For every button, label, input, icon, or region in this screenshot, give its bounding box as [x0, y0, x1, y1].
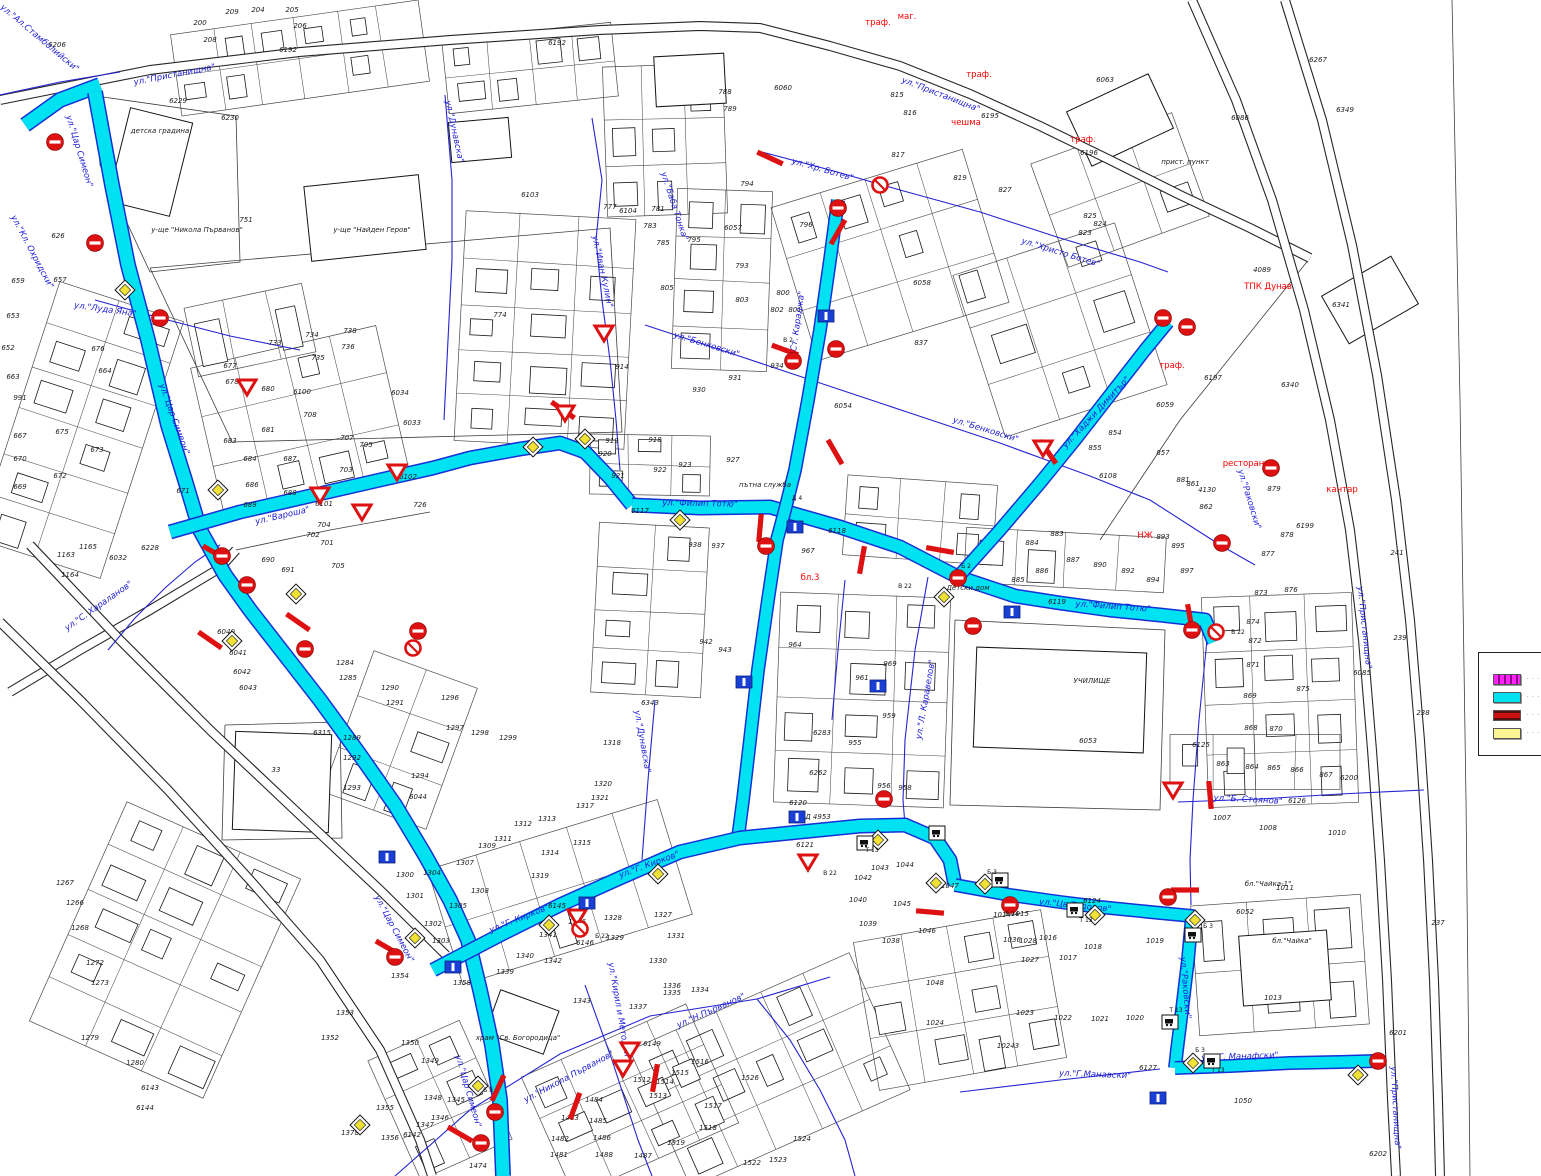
parcel-number: 867	[1319, 771, 1333, 779]
parcel-number: 6267	[1309, 56, 1327, 64]
info-crosswalk-sign-icon	[1150, 1092, 1166, 1104]
parcel-number: 690	[261, 556, 275, 564]
parcel-number: 239	[1393, 634, 1407, 642]
ul-tsar-simeon	[95, 92, 503, 1176]
parcel-number: 1327	[654, 911, 672, 919]
parcel-number: 1349	[421, 1057, 439, 1065]
sign-code-label: Т 13	[864, 847, 878, 854]
parcel-number: 672	[53, 472, 67, 480]
parcel-number: 1024	[926, 1019, 944, 1027]
parcel-number: 1514	[656, 1078, 674, 1086]
parcel-number: 6057	[724, 224, 742, 232]
parcel-number: 200	[193, 19, 207, 27]
parcel-number: 676	[91, 345, 105, 353]
parcel-number: 794	[740, 180, 753, 188]
parcel-number: 819	[953, 174, 967, 182]
parcel-number: 1311	[494, 835, 512, 843]
parcel-number: 626	[51, 232, 65, 240]
parcel-number: 1165	[79, 543, 97, 551]
map-annotation: у-ще "Найден Геров"	[332, 226, 410, 234]
parcel-number: 878	[1280, 531, 1294, 539]
legend-label: · · · · · · ·	[1527, 676, 1541, 682]
parcel-number: 955	[848, 739, 862, 747]
parcel-number: 1335	[663, 989, 681, 997]
parcel-number: 1515	[671, 1069, 689, 1077]
parcel-number: 1290	[381, 684, 399, 692]
no-entry-sign-icon	[1370, 1053, 1387, 1070]
parcel-number: 1042	[854, 874, 872, 882]
parcel-number: 6054	[834, 402, 852, 410]
parcel-number: 707	[340, 434, 354, 442]
parcel-number: 1285	[339, 674, 357, 682]
parcel-number: 6060	[774, 84, 792, 92]
cadastral-map: 2002042052062082096206623062297516192619…	[0, 0, 1541, 1176]
parcel-number: 777	[603, 203, 617, 211]
parcel-number: 1487	[634, 1152, 652, 1160]
parcel-number: 1350	[401, 1039, 419, 1047]
street-label: ул."Б. Стоянов"	[1212, 793, 1283, 807]
info-crosswalk-sign-icon	[818, 310, 834, 322]
parcel-number: 868	[1244, 724, 1258, 732]
info-crosswalk-sign-icon	[736, 676, 752, 688]
parcel-number: 1513	[649, 1092, 667, 1100]
parcel-number: 663	[6, 373, 19, 381]
legend-header: · · ·	[1493, 661, 1541, 667]
parcel-number: 938	[688, 541, 702, 549]
parcel-number: 671	[176, 487, 189, 495]
parcel-number: 956	[877, 782, 891, 790]
parcel-number: 1008	[1259, 824, 1277, 832]
parcel-number: 1023	[1016, 1009, 1034, 1017]
parcel-number: 877	[1261, 550, 1275, 558]
street-label: ул."Филип Тотю"	[661, 498, 738, 509]
no-entry-sign-icon	[1214, 535, 1231, 552]
legend-swatch-yellow	[1493, 728, 1521, 739]
parcel-number: 667	[13, 432, 27, 440]
parcel-number: 6063	[1096, 76, 1114, 84]
no-entry-sign-icon	[410, 623, 427, 640]
parcel-number: 789	[723, 105, 737, 113]
parcel-number: 703	[339, 466, 352, 474]
parcel-number: 854	[1108, 429, 1121, 437]
parcel-number: 922	[653, 466, 667, 474]
sign-code-label: Б 22	[595, 933, 609, 940]
red-annotation: ТПК Дунав	[1243, 282, 1292, 292]
block	[771, 149, 1009, 360]
parcel-number: 205	[285, 6, 299, 14]
parcel-number: 872	[1248, 637, 1262, 645]
parcel-number: 691	[281, 566, 294, 574]
parcel-number: 738	[343, 327, 357, 335]
parcel-number: 1027	[1021, 956, 1039, 964]
sign-post-bar	[1206, 781, 1214, 809]
parcel-number: 874	[1246, 618, 1259, 626]
parcel-number: 1319	[531, 872, 549, 880]
parcel-number: 927	[726, 456, 740, 464]
sign-post-bar	[857, 546, 867, 574]
parcel-number: 1036	[1003, 936, 1021, 944]
sign-post-bar	[756, 150, 784, 167]
parcel-number: 1046	[918, 927, 936, 935]
no-entry-sign-icon	[473, 1135, 490, 1152]
info-crosswalk-sign-icon	[379, 851, 395, 863]
parcel-number: 873	[1254, 589, 1267, 597]
sign-code-label: Б 3	[483, 1087, 493, 1094]
parcel-number: 1343	[573, 997, 591, 1005]
parcel-number: 670	[13, 455, 27, 463]
parcel-number: 1321	[591, 794, 609, 802]
sign-code-label: В 24	[1005, 911, 1019, 918]
parcel-number: 894	[1146, 576, 1159, 584]
parcel-number: 1038	[882, 937, 900, 945]
map-annotation: бл."Чайка-1"	[1245, 880, 1292, 888]
red-annotation: траф.	[865, 18, 891, 28]
parcel-number: 862	[1199, 503, 1213, 511]
parcel-number: 736	[341, 343, 355, 351]
parcel-number: 1040	[849, 896, 867, 904]
parcel-number: 1304	[423, 869, 441, 877]
parcel-number: 6145	[548, 902, 566, 910]
sign-code-label: В 22	[898, 583, 912, 590]
parcel-number: 1356	[381, 1134, 399, 1142]
yield-sign-icon	[595, 326, 613, 341]
parcel-number: 1007	[1213, 814, 1231, 822]
parcel-number: 208	[203, 36, 217, 44]
parcel-number: 1297	[446, 724, 464, 732]
ul-varosha-casing	[170, 443, 632, 532]
street-label: ул."Хр. Ботев"	[790, 156, 855, 184]
parcel-number: 735	[311, 354, 325, 362]
parcel-number: 1266	[66, 899, 84, 907]
red-annotation: чешма	[951, 118, 981, 128]
parcel-number: 1474	[469, 1162, 487, 1170]
parcel-number: 1021	[1091, 1015, 1109, 1023]
parcel-number: 805	[660, 284, 674, 292]
sign-code-label: Т 13	[1168, 1007, 1182, 1014]
parcel-number: 875	[1296, 685, 1310, 693]
street-label: ул."Цар Симеон"	[63, 113, 95, 188]
parcel-number: 890	[1093, 561, 1107, 569]
parcel-number: 1523	[769, 1156, 787, 1164]
sign-code-label: В 22	[1231, 629, 1245, 636]
parcel-number: 688	[283, 489, 297, 497]
sign-post-bar	[1171, 887, 1199, 892]
parcel-numbers: 2002042052062082096206623062297516192619…	[1, 6, 1445, 1170]
parcel-number: 6118	[828, 527, 846, 535]
no-entry-sign-icon	[152, 310, 169, 327]
no-entry-sign-icon	[239, 577, 256, 594]
legend-item-route-yellow: · · · · ·	[1493, 727, 1541, 739]
parcel-number: 1039	[859, 920, 877, 928]
parcel-number: 657	[53, 276, 67, 284]
no-entry-sign-icon	[1184, 622, 1201, 639]
map-annotation: пътна служба	[739, 481, 791, 489]
map-annotation: бл."Чайка"	[1272, 937, 1312, 945]
parcel-number: 1303	[432, 937, 450, 945]
parcel-number: 6201	[1389, 1029, 1407, 1037]
parcel-number: 681	[261, 426, 274, 434]
map-annotation: прист. пункт	[1161, 158, 1209, 166]
parcel-number: 823	[1078, 229, 1091, 237]
map-canvas[interactable]: 2002042052062082096206623062297516192619…	[0, 0, 1541, 1176]
sign-code-label: Б 2	[961, 563, 971, 570]
parcel-number: 781	[651, 205, 664, 213]
parcel-number: 1267	[56, 879, 74, 887]
parcel-number: 683	[223, 437, 236, 445]
parcel-number: 6229	[169, 97, 187, 105]
parcel-number: 1358	[453, 979, 471, 987]
parcel-number: 1291	[386, 699, 404, 707]
parcel-number: 1296	[441, 694, 459, 702]
parcel-number: 6142	[403, 1131, 421, 1139]
parcel-number: 1519	[667, 1139, 685, 1147]
parcel-number: 664	[98, 367, 111, 375]
parcel-number: 1010	[1328, 829, 1346, 837]
parcel-number: 1317	[576, 802, 594, 810]
red-annotation: бл.3	[801, 573, 820, 583]
parcel-number: 1312	[514, 820, 532, 828]
yield-sign-icon	[799, 855, 817, 870]
parcel-number: 6033	[403, 419, 421, 427]
parcel-number: 6146	[576, 939, 594, 947]
bus-stop-sign-icon	[1067, 903, 1083, 917]
parcel-number: 1300	[396, 871, 414, 879]
parcel-number: 6120	[789, 799, 807, 807]
parcel-number: 6121	[796, 841, 814, 849]
parcel-number: 6108	[1099, 472, 1117, 480]
parcel-number: 991	[13, 394, 26, 402]
parcel-number: 6100	[293, 388, 311, 396]
parcel-number: 669	[13, 483, 27, 491]
red-annotation: НЖ	[1137, 531, 1153, 541]
parcel-number: 6103	[521, 191, 539, 199]
parcel-number: 1354	[391, 972, 409, 980]
map-annotation: Детски дом	[945, 584, 990, 592]
parcel-number: 895	[1171, 542, 1185, 550]
parcel-number: 6228	[141, 544, 159, 552]
parcel-number: 1043	[871, 864, 889, 872]
parcel-number: 1272	[86, 959, 104, 967]
parcel-number: 708	[303, 411, 317, 419]
parcel-number: 6230	[221, 114, 239, 122]
yield-sign-icon	[238, 380, 256, 395]
parcel-number: 673	[90, 446, 103, 454]
parcel-number: 920	[598, 450, 612, 458]
parcel-number: 659	[11, 277, 25, 285]
parcel-number: 958	[898, 784, 912, 792]
sign-code-label: Д 4	[792, 495, 803, 502]
parcel-number: 942	[699, 638, 713, 646]
parcel-number: 893	[1156, 533, 1169, 541]
parcel-number: 1301	[406, 892, 424, 900]
parcel-number: 6340	[1281, 381, 1299, 389]
parcel-number: 6059	[1156, 401, 1174, 409]
parcel-number: 6052	[1236, 908, 1254, 916]
sign-code-label: В 22	[823, 870, 837, 877]
parcel-number: 6343	[641, 699, 659, 707]
parcel-number: 1305	[449, 902, 467, 910]
parcel-number: 6192	[548, 39, 566, 47]
parcel-number: 1481	[550, 1151, 568, 1159]
red-annotation: кантар	[1326, 485, 1357, 495]
parcel-number: 6149	[643, 1040, 661, 1048]
parcel-number: 959	[882, 712, 896, 720]
parcel-number: 6144	[136, 1104, 154, 1112]
parcel-number: 1485	[589, 1117, 607, 1125]
info-crosswalk-sign-icon	[579, 897, 595, 909]
parcel-number: 816	[903, 109, 917, 117]
parcel-number: 879	[1267, 485, 1281, 493]
parcel-number: 1019	[1146, 937, 1164, 945]
parcel-number: 1313	[538, 815, 556, 823]
parcel-number: 1163	[57, 551, 75, 559]
parcel-number: 6085	[1353, 669, 1371, 677]
parcel-number: 1353	[336, 1009, 354, 1017]
parcel-number: 1044	[896, 861, 914, 869]
no-entry-sign-icon	[758, 538, 775, 555]
parcel-number: 869	[1243, 692, 1257, 700]
no-entry-sign-icon	[297, 641, 314, 658]
bus-stop-sign-icon	[929, 826, 945, 840]
parcel-number: 238	[1416, 709, 1430, 717]
street-label: ул."Раковски"	[1235, 467, 1263, 530]
parcel-number: 734	[305, 331, 318, 339]
no-entry-sign-icon	[214, 548, 231, 565]
parcel-number: 855	[1088, 444, 1102, 452]
legend-item-route-cyan: · · · · ·	[1493, 691, 1541, 703]
parcel-number: 1512	[633, 1076, 651, 1084]
parcel-number: 964	[788, 641, 801, 649]
parcel-number: 881	[1176, 476, 1189, 484]
parcel-number: 931	[728, 374, 741, 382]
parcel-number: 6197	[1204, 374, 1222, 382]
sign-post-bar	[447, 1125, 474, 1144]
parcel-number: 866	[1290, 766, 1304, 774]
parcel-number: 4130	[1198, 486, 1216, 494]
parcel-number: 1339	[496, 968, 514, 976]
parcel-number: 6196	[1080, 149, 1098, 157]
parcel-number: 783	[643, 222, 656, 230]
parcel-number: 702	[306, 531, 320, 539]
parcel-number: 1355	[376, 1104, 394, 1112]
parcel-number: 1320	[594, 780, 612, 788]
parcel-number: 6200	[1340, 774, 1358, 782]
sign-code-label: Б 3	[987, 869, 997, 876]
parcel-number: 837	[914, 339, 928, 347]
parcel-number: 884	[1025, 539, 1038, 547]
parcel-number: 1318	[603, 739, 621, 747]
parcel-number: 6086	[1231, 114, 1249, 122]
parcel-number: 1482	[551, 1135, 569, 1143]
parcel-number: 705	[359, 441, 373, 449]
parcel-number: 751	[239, 216, 252, 224]
parcel-number: 6104	[619, 207, 637, 215]
parcel-number: 10243	[997, 1042, 1019, 1050]
parcel-number: 1348	[424, 1094, 442, 1102]
parcel-number: 1308	[471, 887, 489, 895]
parcel-number: 1342	[544, 957, 562, 965]
parcel-number: 6119	[1048, 598, 1066, 606]
block	[29, 802, 300, 1099]
parcel-number: 6053	[1079, 737, 1097, 745]
parcel-number: 6034	[391, 389, 409, 397]
parcel-number: 883	[1050, 530, 1063, 538]
parcel-number: 687	[283, 455, 297, 463]
bus-stop-sign-icon	[1204, 1054, 1220, 1068]
parcel-number: 6044	[409, 793, 427, 801]
parcel-number: 1314	[541, 849, 559, 857]
no-entry-sign-icon	[1155, 310, 1172, 327]
parcel-number: 887	[1066, 556, 1080, 564]
parcel-number: 733	[268, 339, 281, 347]
parcel-number: 1050	[1234, 1097, 1252, 1105]
parcel-number: 1016	[1039, 934, 1057, 942]
red-annotation: траф.	[966, 70, 992, 80]
parcel-number: 1292	[343, 754, 361, 762]
parcel-number: 6349	[1336, 106, 1354, 114]
parcel-number: 209	[225, 8, 239, 16]
parcel-number: 6032	[109, 554, 127, 562]
parcel-number: 701	[320, 539, 333, 547]
parcel-number: 1345	[447, 1096, 465, 1104]
parcel-number: 33	[272, 766, 281, 774]
parcel-number: 863	[1216, 760, 1229, 768]
red-annotation: траф.	[1070, 135, 1096, 145]
parcel-number: 680	[261, 385, 275, 393]
ul-tsar-simeon-casing	[95, 92, 503, 1176]
no-entry-sign-icon	[387, 949, 404, 966]
no-entry-sign-icon	[828, 341, 845, 358]
parcel-number: 1293	[343, 784, 361, 792]
legend-item-route-red: · · · · ·	[1493, 709, 1541, 721]
parcel-number: 943	[718, 646, 731, 654]
parcel-number: 1331	[667, 932, 685, 940]
parcel-number: 677	[223, 362, 237, 370]
parcel-number: 1020	[1126, 1014, 1144, 1022]
parcel-number: 6117	[631, 507, 649, 515]
parcel-number: 1334	[691, 986, 709, 994]
parcel-number: 6127	[1139, 1064, 1157, 1072]
map-annotation: детска градина	[130, 127, 189, 135]
priority-road-sign-icon	[208, 480, 228, 500]
bus-stop-sign-icon	[1162, 1015, 1178, 1029]
parcel-number: 871	[1246, 661, 1259, 669]
parcel-number: 1045	[893, 900, 911, 908]
red-labels: траф.маг.траф.чешматраф.ТПК Дунавтраф.ре…	[801, 12, 1358, 583]
map-annotation: УЧИЛИЩЕ	[1074, 677, 1111, 685]
parcel-number: 6143	[141, 1084, 159, 1092]
legend-label: · · · · ·	[1527, 730, 1541, 736]
info-crosswalk-sign-icon	[789, 811, 805, 823]
map-legend: · · · · · · · · · · · · · · · · · · · · …	[1478, 652, 1541, 756]
parcel-number: 923	[678, 461, 691, 469]
parcel-number: 241	[1390, 549, 1403, 557]
red-annotation: траф.	[1159, 361, 1185, 371]
parcel-number: 969	[883, 660, 897, 668]
no-entry-sign-icon	[1263, 460, 1280, 477]
parcel-number: 6262	[809, 769, 827, 777]
parcel-number: 686	[245, 481, 259, 489]
parcel-number: 1013	[1264, 994, 1282, 1002]
parcel-number: 206	[293, 22, 307, 30]
roads	[0, 0, 1440, 1176]
parcel-number: 788	[718, 88, 732, 96]
no-parking-sign-icon	[406, 641, 421, 656]
parcel-number: 6195	[981, 112, 999, 120]
parcel-number: 6199	[1296, 522, 1314, 530]
parcel-number: 1315	[573, 839, 591, 847]
parcel-blocks	[0, 0, 1369, 1176]
